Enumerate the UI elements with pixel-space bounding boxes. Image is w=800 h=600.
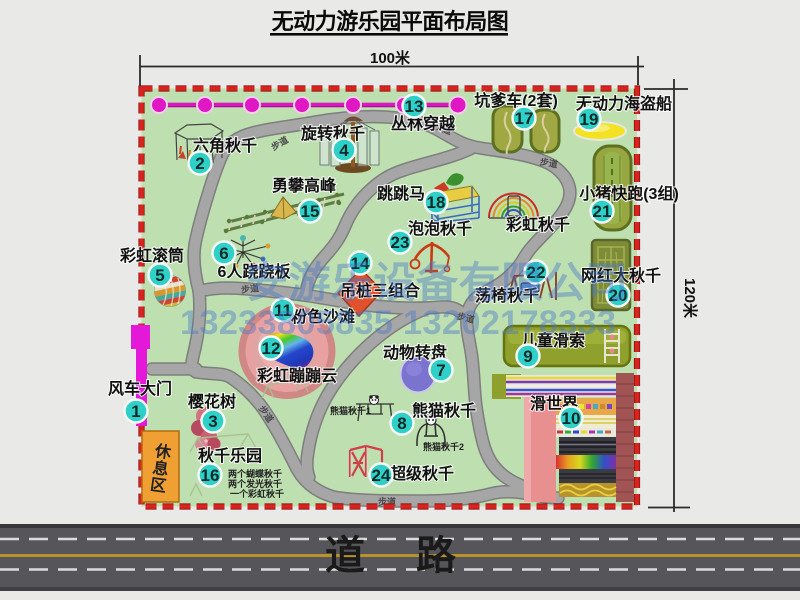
svg-text:超级秋千: 超级秋千	[389, 464, 454, 483]
svg-text:21: 21	[593, 202, 612, 221]
svg-text:7: 7	[436, 361, 445, 380]
svg-text:两个发光秋千: 两个发光秋千	[228, 478, 282, 489]
svg-text:熊猫秋千: 熊猫秋千	[412, 401, 476, 420]
svg-text:23: 23	[391, 233, 410, 252]
svg-text:路: 路	[416, 534, 457, 578]
svg-text:道: 道	[325, 534, 365, 578]
svg-text:13233805835 13202178333: 13233805835 13202178333	[180, 304, 616, 342]
svg-text:一个彩虹秋千: 一个彩虹秋千	[230, 488, 284, 499]
svg-text:6: 6	[219, 244, 228, 263]
svg-text:19: 19	[580, 110, 599, 129]
svg-text:秋千乐园: 秋千乐园	[198, 446, 262, 465]
svg-text:安游乐设备有限公司: 安游乐设备有限公司	[246, 259, 629, 306]
svg-text:风车大门: 风车大门	[108, 379, 172, 398]
svg-text:4: 4	[339, 141, 349, 160]
svg-text:9: 9	[523, 347, 532, 366]
svg-text:两个蝴蝶秋千: 两个蝴蝶秋千	[228, 468, 282, 479]
svg-text:1: 1	[131, 402, 140, 421]
svg-text:17: 17	[515, 109, 534, 128]
svg-text:坑爹车(2套): 坑爹车(2套)	[474, 91, 558, 110]
svg-text:区: 区	[149, 476, 167, 496]
svg-text:16: 16	[201, 466, 220, 485]
svg-text:跳跳马: 跳跳马	[377, 184, 425, 203]
svg-text:无动力游乐园平面布局图: 无动力游乐园平面布局图	[272, 9, 509, 34]
svg-text:彩虹秋千: 彩虹秋千	[505, 215, 570, 234]
svg-text:18: 18	[427, 193, 446, 212]
svg-text:2: 2	[195, 154, 204, 173]
svg-text:熊猫秋千1: 熊猫秋千1	[330, 405, 371, 416]
svg-text:5: 5	[155, 266, 164, 285]
svg-text:泡泡秋千: 泡泡秋千	[408, 219, 472, 238]
svg-text:小猪快跑(3组): 小猪快跑(3组)	[579, 184, 679, 203]
svg-text:120米: 120米	[681, 278, 699, 319]
svg-text:100米: 100米	[370, 49, 411, 67]
svg-text:8: 8	[397, 414, 406, 433]
svg-text:熊猫秋千2: 熊猫秋千2	[423, 441, 464, 452]
svg-text:彩虹滚筒: 彩虹滚筒	[119, 246, 184, 265]
svg-text:24: 24	[372, 466, 391, 485]
svg-text:3: 3	[208, 412, 217, 431]
svg-text:勇攀高峰: 勇攀高峰	[272, 176, 337, 195]
svg-text:10: 10	[562, 409, 581, 428]
svg-text:13: 13	[405, 97, 424, 116]
svg-text:息: 息	[151, 458, 170, 479]
svg-text:旋转秋千: 旋转秋千	[300, 124, 365, 143]
svg-text:15: 15	[301, 202, 320, 221]
svg-text:丛林穿越: 丛林穿越	[391, 114, 456, 133]
svg-text:樱花树: 樱花树	[188, 392, 236, 411]
svg-text:彩虹蹦蹦云: 彩虹蹦蹦云	[256, 366, 337, 385]
